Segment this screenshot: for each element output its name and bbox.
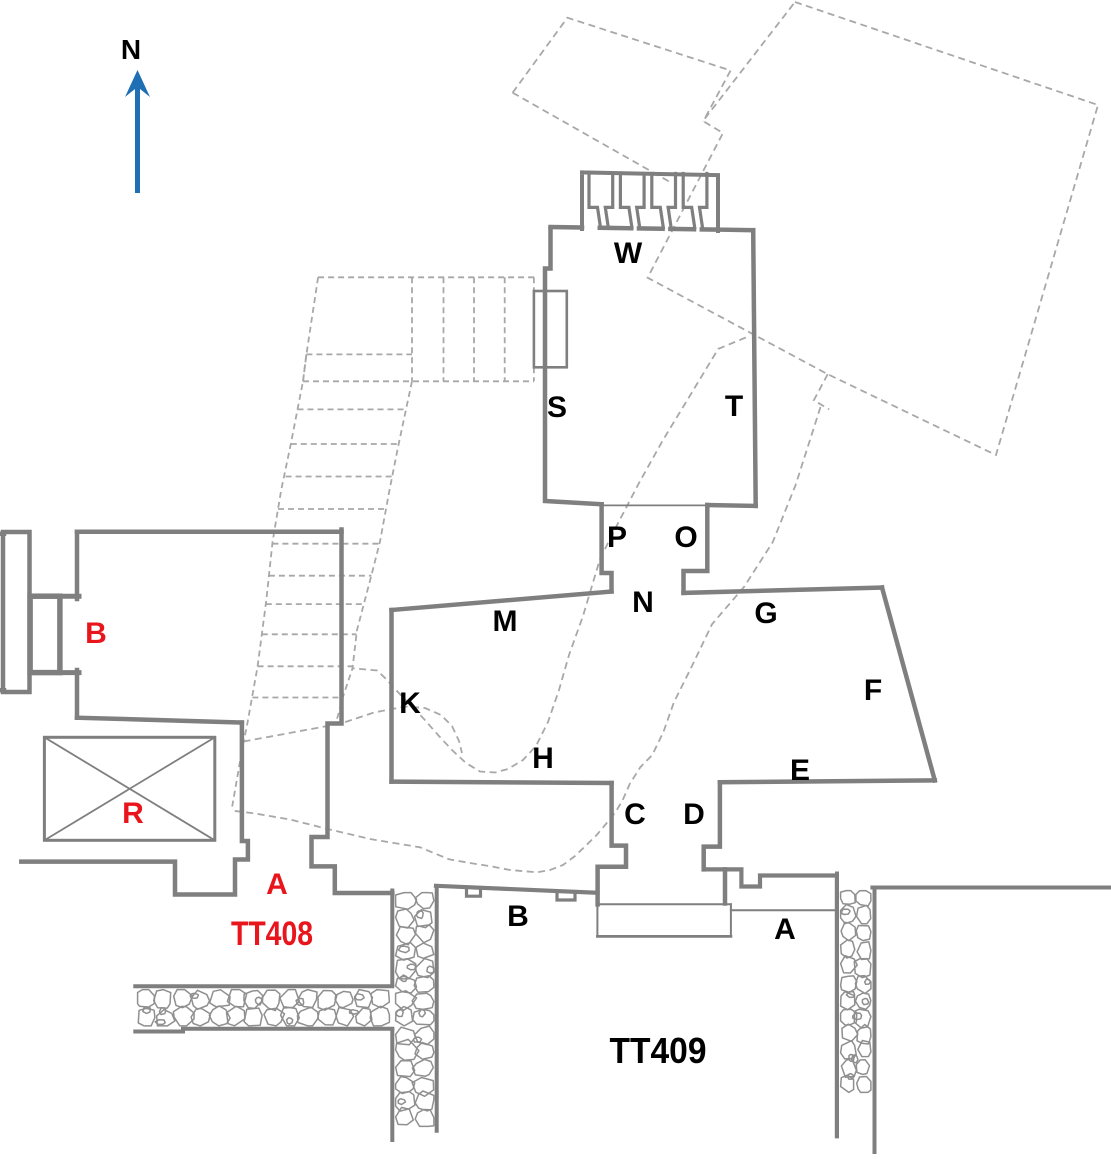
- svg-text:TT408: TT408: [231, 915, 313, 953]
- svg-text:N: N: [632, 586, 654, 619]
- svg-text:A: A: [774, 913, 796, 946]
- svg-text:B: B: [507, 900, 529, 933]
- svg-text:H: H: [532, 742, 554, 775]
- svg-text:R: R: [122, 797, 144, 830]
- svg-text:B: B: [85, 617, 107, 650]
- svg-text:W: W: [614, 237, 643, 270]
- svg-text:C: C: [624, 798, 646, 831]
- svg-text:T: T: [725, 390, 743, 423]
- svg-text:F: F: [864, 674, 882, 707]
- svg-text:E: E: [790, 754, 810, 787]
- svg-text:M: M: [493, 605, 518, 638]
- svg-text:O: O: [674, 521, 697, 554]
- svg-text:S: S: [547, 391, 567, 424]
- svg-text:G: G: [754, 597, 777, 630]
- svg-text:K: K: [399, 687, 421, 720]
- svg-text:N: N: [121, 34, 141, 65]
- svg-text:TT409: TT409: [610, 1030, 707, 1071]
- svg-text:A: A: [266, 868, 288, 901]
- svg-text:D: D: [683, 798, 705, 831]
- svg-text:P: P: [607, 521, 627, 554]
